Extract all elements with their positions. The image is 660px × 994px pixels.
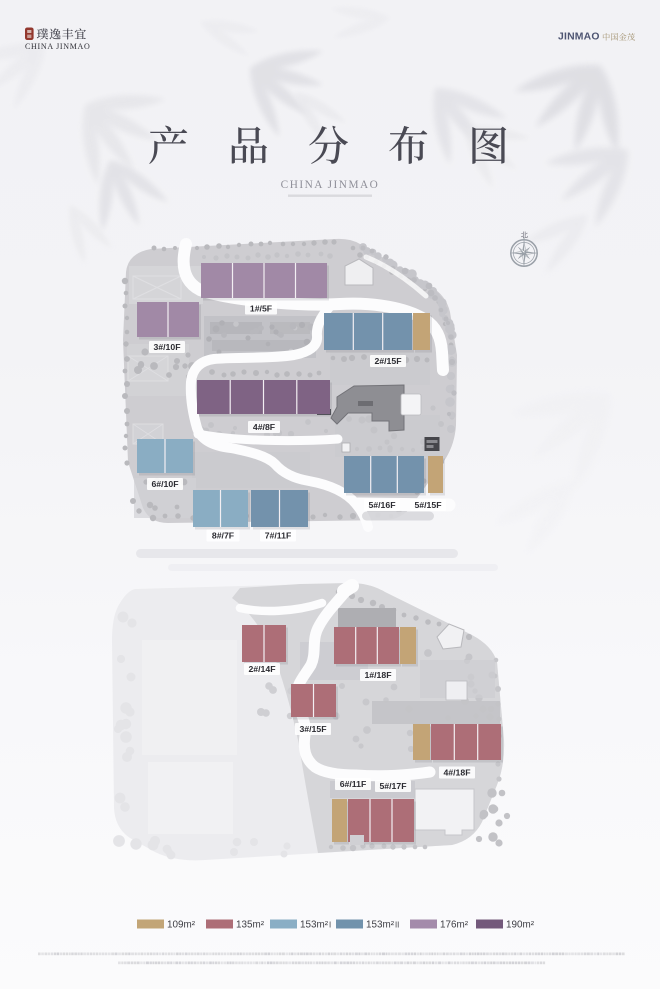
svg-text:153m²I: 153m²I — [300, 920, 331, 931]
svg-text:190m²: 190m² — [506, 920, 535, 931]
svg-text:1#/5F: 1#/5F — [250, 304, 272, 314]
svg-text:CHINA JINMAO: CHINA JINMAO — [25, 42, 91, 51]
svg-text:3#/15F: 3#/15F — [299, 724, 326, 734]
svg-text:CHINA JINMAO: CHINA JINMAO — [281, 179, 380, 191]
svg-text:135m²: 135m² — [236, 920, 265, 931]
svg-text:2#/15F: 2#/15F — [374, 356, 401, 366]
svg-text:5#/16F: 5#/16F — [368, 500, 395, 510]
svg-text:5#/17F: 5#/17F — [379, 781, 406, 791]
svg-text:2#/14F: 2#/14F — [248, 664, 275, 674]
svg-text:6#/11F: 6#/11F — [340, 779, 367, 789]
svg-text:5#/15F: 5#/15F — [414, 500, 441, 510]
svg-text:4#/8F: 4#/8F — [253, 422, 275, 432]
svg-text:3#/10F: 3#/10F — [153, 342, 180, 352]
svg-text:176m²: 176m² — [440, 920, 469, 931]
svg-text:7#/11F: 7#/11F — [265, 531, 292, 541]
svg-text:4#/18F: 4#/18F — [443, 768, 470, 778]
svg-text:1#/18F: 1#/18F — [364, 670, 391, 680]
svg-text:JINMAO: JINMAO — [558, 31, 600, 42]
svg-text:6#/10F: 6#/10F — [151, 479, 178, 489]
svg-text:8#/7F: 8#/7F — [212, 531, 234, 541]
svg-text:109m²: 109m² — [167, 920, 196, 931]
svg-text:153m²II: 153m²II — [366, 920, 399, 931]
